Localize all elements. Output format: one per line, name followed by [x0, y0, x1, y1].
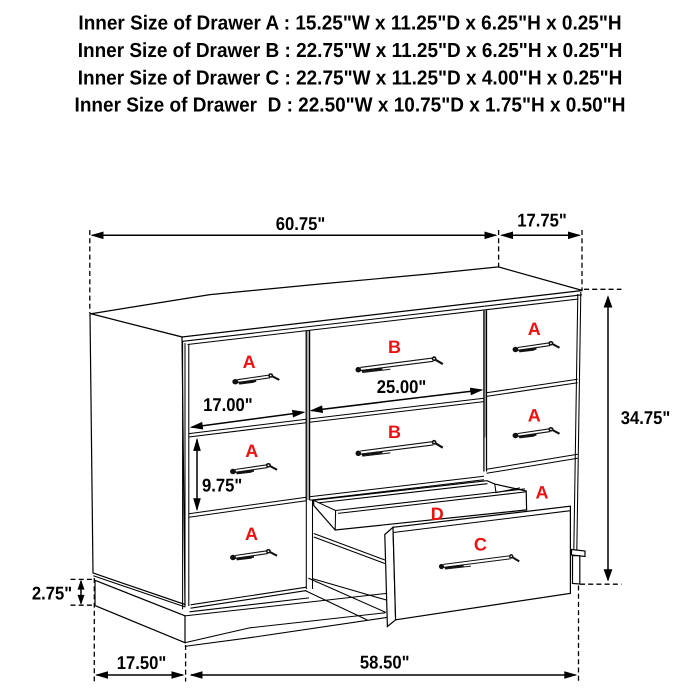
svg-text:60.75": 60.75": [276, 213, 326, 234]
svg-text:Inner Size of Drawer B : 22.75: Inner Size of Drawer B : 22.75"W x 11.25…: [78, 40, 623, 62]
svg-text:B: B: [388, 422, 401, 442]
svg-text:Inner Size of Drawer A : 15.25: Inner Size of Drawer A : 15.25"W x 11.25…: [78, 13, 621, 35]
svg-text:A: A: [245, 441, 258, 461]
svg-text:17.00": 17.00": [203, 394, 253, 415]
svg-text:17.50": 17.50": [117, 652, 167, 673]
svg-text:A: A: [536, 482, 549, 502]
svg-text:A: A: [245, 524, 258, 544]
svg-text:A: A: [243, 352, 256, 372]
svg-text:B: B: [388, 337, 401, 357]
svg-text:2.75": 2.75": [32, 583, 72, 604]
svg-text:58.50": 58.50": [360, 652, 410, 673]
svg-text:C: C: [474, 535, 487, 555]
svg-text:Inner Size of Drawer D : 22.5: Inner Size of Drawer D : 22.50"W x 10.75…: [75, 95, 626, 117]
svg-text:34.75": 34.75": [621, 407, 671, 428]
svg-text:A: A: [528, 319, 541, 339]
svg-text:17.75": 17.75": [517, 210, 567, 231]
svg-text:9.75": 9.75": [202, 475, 242, 496]
svg-text:D: D: [431, 504, 444, 524]
svg-text:Inner Size of Drawer C : 22.75: Inner Size of Drawer C : 22.75"W x 11.25…: [78, 67, 623, 89]
svg-text:A: A: [528, 406, 541, 426]
svg-text:25.00": 25.00": [377, 376, 427, 397]
